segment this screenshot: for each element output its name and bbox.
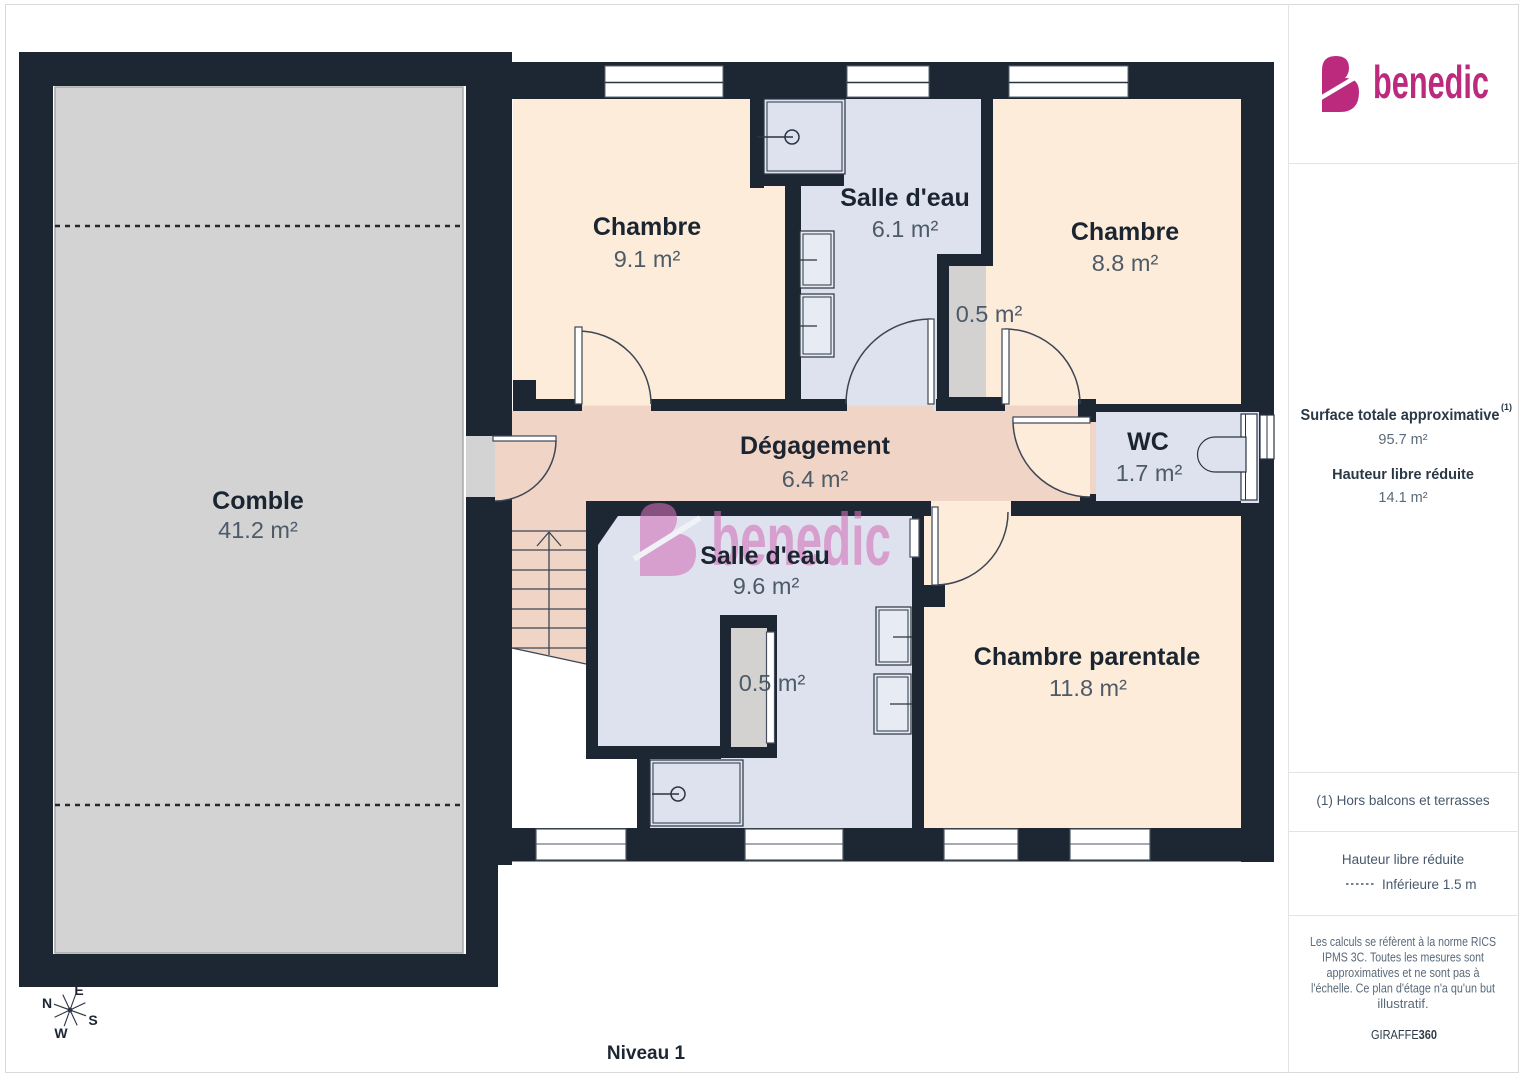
svg-text:Chambre: Chambre [1071, 218, 1179, 246]
svg-text:S: S [88, 1012, 97, 1028]
svg-text:95.7 m²: 95.7 m² [1378, 432, 1427, 448]
svg-text:Les calculs se réfèrent à la n: Les calculs se réfèrent à la norme RICS [1310, 934, 1496, 949]
svg-text:Dégagement: Dégagement [740, 432, 891, 460]
svg-text:0.5 m²: 0.5 m² [739, 670, 806, 696]
svg-text:IPMS 3C. Toutes les mesures so: IPMS 3C. Toutes les mesures sont [1322, 950, 1484, 965]
svg-text:6.4 m²: 6.4 m² [782, 466, 849, 492]
svg-text:approximatives et ne sont pas: approximatives et ne sont pas à [1327, 965, 1481, 980]
svg-text:Salle d'eau: Salle d'eau [700, 542, 830, 570]
svg-text:Hauteur libre réduite: Hauteur libre réduite [1342, 852, 1464, 867]
svg-text:(1): (1) [1501, 402, 1512, 412]
svg-text:illustratif.: illustratif. [1377, 996, 1428, 1011]
svg-text:0.5 m²: 0.5 m² [956, 301, 1023, 327]
svg-text:Hauteur libre réduite: Hauteur libre réduite [1332, 467, 1474, 483]
svg-text:Surface totale approximative: Surface totale approximative [1301, 407, 1500, 424]
svg-text:E: E [74, 982, 83, 998]
svg-text:GIRAFFE360: GIRAFFE360 [1371, 1028, 1437, 1042]
svg-text:1.7 m²: 1.7 m² [1116, 460, 1183, 486]
svg-text:Chambre parentale: Chambre parentale [974, 643, 1201, 671]
svg-text:9.6 m²: 9.6 m² [733, 573, 800, 599]
svg-text:Chambre: Chambre [593, 213, 701, 241]
svg-text:Comble: Comble [212, 487, 304, 515]
svg-text:benedic: benedic [1373, 56, 1489, 108]
svg-text:9.1 m²: 9.1 m² [614, 246, 681, 272]
svg-text:Inférieure 1.5 m: Inférieure 1.5 m [1382, 877, 1477, 892]
svg-text:8.8 m²: 8.8 m² [1092, 250, 1159, 276]
svg-text:6.1 m²: 6.1 m² [872, 216, 939, 242]
svg-text:11.8 m²: 11.8 m² [1049, 675, 1127, 701]
svg-text:41.2 m²: 41.2 m² [218, 517, 298, 543]
svg-text:W: W [54, 1025, 68, 1041]
svg-text:WC: WC [1127, 428, 1169, 456]
svg-text:14.1 m²: 14.1 m² [1378, 490, 1427, 506]
svg-text:Niveau 1: Niveau 1 [607, 1043, 686, 1064]
svg-text:(1) Hors balcons et terrasses: (1) Hors balcons et terrasses [1316, 793, 1490, 808]
svg-text:l'échelle. Ce plan d'étage n'a: l'échelle. Ce plan d'étage n'a qu'un but [1311, 981, 1495, 996]
svg-text:Salle d'eau: Salle d'eau [840, 184, 970, 212]
svg-text:N: N [42, 995, 52, 1011]
